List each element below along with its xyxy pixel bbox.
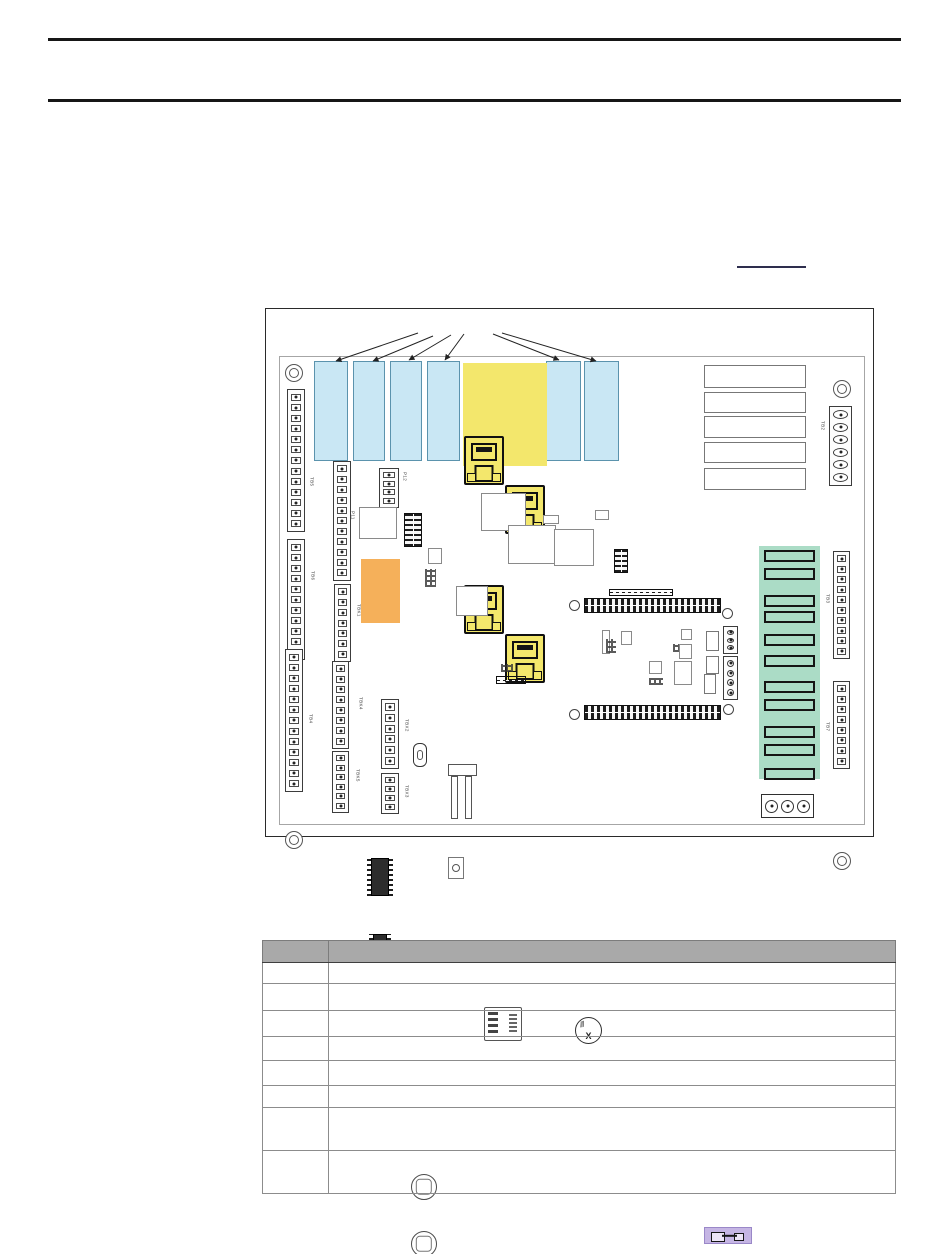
highlight-fuse-purple (704, 1227, 752, 1244)
mounting-hole (285, 364, 303, 382)
table-cell (263, 1011, 329, 1037)
terminal-pin (291, 565, 301, 572)
terminal-pin (291, 575, 301, 582)
terminal-pin (291, 499, 301, 506)
label-tb5: TB5 (309, 477, 314, 486)
relay-bar-10 (764, 744, 815, 756)
white-box-5 (704, 468, 806, 490)
table-cell (329, 1108, 896, 1151)
terminal-strip-tb5 (287, 389, 305, 532)
relay-bar-4 (764, 611, 815, 623)
table-cell (263, 963, 329, 984)
terminal-pin (833, 448, 848, 457)
terminal-pin (727, 679, 734, 686)
table-row (263, 1086, 896, 1108)
terminal-pin (337, 465, 347, 472)
table-header-row (263, 941, 896, 963)
rj45-detail (467, 622, 476, 631)
relay-small-1 (706, 631, 719, 651)
terminal-pin (289, 728, 299, 735)
standoff-hole (569, 600, 580, 611)
terminal-pin (385, 714, 395, 722)
ic-large-4 (456, 586, 488, 616)
terminal-pin (291, 468, 301, 475)
terminal-pin (336, 774, 345, 780)
terminal-pin (289, 654, 299, 661)
terminal-pin (385, 786, 395, 792)
relay-bar-5 (764, 634, 815, 646)
terminal-pin (338, 599, 347, 606)
ic-sq-1 (621, 631, 632, 645)
terminal-pin (385, 777, 395, 783)
terminal-pin (837, 727, 846, 734)
label-tbk4: TBK4 (358, 697, 363, 710)
relay-bar-11 (764, 768, 815, 780)
terminal-pin (837, 706, 846, 713)
pin-header-row (496, 676, 526, 684)
terminal-pin (336, 755, 345, 761)
terminal-pin (385, 703, 395, 711)
terminal-pin (289, 675, 299, 682)
table-cell (263, 1151, 329, 1194)
table-header-cell (263, 941, 329, 963)
terminal-strip-tbk1 (334, 584, 351, 662)
ic-sq-2 (681, 629, 692, 640)
board-parts-layer: TB2TB3TB7TB5TB6TB4TBK1TBK4TBK5TBX2TBX3P1… (266, 309, 873, 836)
terminal-pin (336, 665, 345, 672)
dip-switch-16 (367, 858, 393, 896)
standoff-hole (722, 608, 733, 619)
highlight-slot-blue-2 (353, 361, 385, 461)
terminal-strip-tbk5 (332, 751, 349, 813)
rj45-detail (512, 641, 538, 659)
regulator-leg (465, 776, 472, 819)
terminal-pin (727, 660, 734, 667)
jumper-3 (606, 639, 616, 653)
terminal-strip-inner (333, 461, 351, 581)
terminal-block-tb7 (833, 681, 850, 769)
pin-header-dual-top (584, 598, 721, 613)
terminal-pin (837, 627, 846, 634)
terminal-strip-tbk4 (332, 661, 349, 749)
rj45-detail (467, 473, 476, 482)
legend-table (262, 940, 896, 1194)
terminal-pin (291, 457, 301, 464)
relay-bar-6 (764, 655, 815, 667)
buzzer (448, 857, 464, 879)
label-tb3: TB3 (825, 594, 830, 603)
relay-bar-7 (764, 681, 815, 693)
label-tb2: TB2 (820, 421, 825, 430)
ic-small-2 (595, 510, 609, 520)
table-cell (263, 1086, 329, 1108)
terminal-pin (385, 757, 395, 765)
pin-header-single (609, 589, 673, 596)
hyperlink-underline[interactable] (737, 266, 806, 268)
table-row (263, 984, 896, 1011)
terminal-pin (338, 620, 347, 627)
relay-bar-2 (764, 568, 815, 580)
white-box-4 (704, 442, 806, 463)
highlight-slot-blue-1 (314, 361, 348, 461)
terminal-pin (336, 784, 345, 790)
table-cell (263, 1108, 329, 1151)
standoff-hole (569, 709, 580, 720)
terminal-pin (837, 685, 846, 692)
terminal-pin (291, 638, 301, 645)
terminal-pin (289, 770, 299, 777)
connector-p12 (379, 468, 399, 508)
terminal-pin (291, 510, 301, 517)
terminal-pin (337, 476, 347, 483)
highlight-slot-blue-3 (390, 361, 422, 461)
terminal-pin (336, 717, 345, 724)
terminal-pin (837, 617, 846, 624)
table-row (263, 1061, 896, 1086)
terminal-pin (385, 735, 395, 743)
terminal-pin (338, 651, 347, 658)
terminal-pin (837, 576, 846, 583)
terminal-pin (336, 676, 345, 683)
relay-small-2 (706, 656, 719, 674)
ic-large-2 (508, 525, 556, 564)
terminal-pin (338, 630, 347, 637)
table-row (263, 1108, 896, 1151)
table-cell (329, 1037, 896, 1061)
mounting-hole (833, 380, 851, 398)
ic-small-1 (543, 515, 559, 524)
jumper-2 (649, 678, 663, 685)
terminal-pin (336, 738, 345, 745)
label-tb4: TB4 (308, 714, 313, 723)
terminal-pin (289, 780, 299, 787)
terminal-strip-tb4 (285, 649, 303, 792)
rj45-detail (475, 614, 494, 631)
terminal-pin (837, 737, 846, 744)
white-box-1 (704, 365, 806, 388)
terminal-pin (291, 544, 301, 551)
power-screw (781, 800, 794, 813)
table-cell (329, 1086, 896, 1108)
terminal-pin (727, 689, 734, 696)
pin-header-dual-bottom (584, 705, 721, 720)
standoff-hole (723, 704, 734, 715)
table-row (263, 963, 896, 984)
power-terminal-block (761, 794, 814, 818)
fuse-symbol (722, 1234, 737, 1236)
terminal-pin (833, 435, 848, 444)
rj45-jack-1 (464, 436, 504, 485)
board-figure: TB2TB3TB7TB5TB6TB4TBK1TBK4TBK5TBX2TBX3P1… (265, 308, 874, 837)
terminal-pin (385, 804, 395, 810)
terminal-pin (336, 696, 345, 703)
terminal-pin (291, 520, 301, 527)
terminal-pin (337, 559, 347, 566)
terminal-pin (383, 489, 395, 495)
highlight-slot-blue-5 (546, 361, 581, 461)
label-p11: P11 (350, 511, 355, 520)
resistor-network (425, 569, 436, 587)
terminal-pin (289, 685, 299, 692)
terminal-pin (837, 637, 846, 644)
terminal-pin (337, 517, 347, 524)
terminal-pin (291, 586, 301, 593)
terminal-pin (291, 425, 301, 432)
relay-bar-8 (764, 699, 815, 711)
label-tbk1: TBK1 (356, 604, 361, 617)
header-rule-bottom (48, 99, 901, 102)
relay-small-3 (704, 674, 716, 694)
terminal-pin (291, 554, 301, 561)
terminal-pin (383, 472, 395, 478)
terminal-pin (837, 747, 846, 754)
terminal-pin (833, 423, 848, 432)
table-header-cell (329, 941, 896, 963)
terminal-pin (385, 795, 395, 801)
terminal-pin (833, 473, 848, 482)
terminal-pin (289, 759, 299, 766)
vertical-connector (404, 513, 422, 547)
terminal-pin (291, 404, 301, 411)
terminal-strip-tb6 (287, 539, 305, 660)
terminal-pin (291, 415, 301, 422)
table-cell (329, 1061, 896, 1086)
terminal-pin (289, 664, 299, 671)
ic-p11 (359, 507, 397, 539)
table-cell (263, 1061, 329, 1086)
terminal-pin (837, 607, 846, 614)
table-cell (329, 1151, 896, 1194)
terminal-pin (336, 765, 345, 771)
terminal-pin (289, 706, 299, 713)
relay-bar-3 (764, 595, 815, 607)
terminal-pin (336, 686, 345, 693)
terminal-pin (289, 696, 299, 703)
terminal-pin (336, 793, 345, 799)
terminal-pin (291, 628, 301, 635)
terminal-block-tb3 (833, 551, 850, 659)
terminal-pin (727, 670, 734, 677)
jumper-block (501, 664, 513, 672)
terminal-pin (289, 749, 299, 756)
terminal-pin (291, 436, 301, 443)
mounting-hole (833, 852, 851, 870)
terminal-pin (727, 645, 734, 650)
terminal-pin (833, 460, 848, 469)
terminal-pin (291, 596, 301, 603)
label-tbx3: TBX3 (404, 785, 409, 798)
ic-rect (674, 661, 692, 685)
power-screw (765, 800, 778, 813)
ic-large-3 (554, 529, 594, 566)
terminal-block-tb2 (829, 406, 852, 486)
terminal-pin (837, 586, 846, 593)
rj45-detail (492, 622, 501, 631)
connector-4pin-b (723, 656, 738, 700)
label-tb6: TB6 (310, 571, 315, 580)
table-cell (329, 963, 896, 984)
terminal-pin (385, 725, 395, 733)
label-tbx2: TBX2 (404, 719, 409, 732)
terminal-pin (385, 746, 395, 754)
terminal-pin (338, 609, 347, 616)
terminal-pin (837, 716, 846, 723)
mounting-hole (285, 831, 303, 849)
soic-8b (679, 644, 692, 659)
white-box-2 (704, 392, 806, 413)
table-row (263, 1037, 896, 1061)
relay-bar-1 (764, 550, 815, 562)
terminal-pin (727, 638, 734, 643)
terminal-pin (336, 727, 345, 734)
connector-4pin-a (723, 626, 738, 654)
terminal-pin (727, 630, 734, 635)
terminal-pin (337, 528, 347, 535)
terminal-pin (291, 394, 301, 401)
terminal-pin (289, 717, 299, 724)
soic-8 (428, 548, 442, 564)
table-row (263, 1011, 896, 1037)
terminal-pin (291, 446, 301, 453)
highlight-slot-blue-6 (584, 361, 619, 461)
terminal-pin (337, 497, 347, 504)
terminal-pin (837, 555, 846, 562)
micro-usb-port (413, 743, 427, 767)
terminal-pin (837, 596, 846, 603)
power-screw (797, 800, 810, 813)
terminal-pin (291, 478, 301, 485)
terminal-pin (337, 486, 347, 493)
table-cell (263, 984, 329, 1011)
table-cell (329, 984, 896, 1011)
terminal-pin (337, 507, 347, 514)
rj45-detail (492, 473, 501, 482)
terminal-pin (289, 738, 299, 745)
terminal-pin (291, 617, 301, 624)
terminal-pin (837, 648, 846, 655)
rj45-detail (471, 443, 497, 461)
terminal-pin (336, 707, 345, 714)
capacitor-2 (411, 1231, 437, 1254)
terminal-pin (337, 569, 347, 576)
header-rule-top (48, 38, 901, 41)
terminal-pin (337, 538, 347, 545)
terminal-strip-tbx3 (381, 773, 399, 814)
regulator-leg (451, 776, 458, 819)
terminal-pin (338, 588, 347, 595)
table-cell (329, 1011, 896, 1037)
label-tbk5: TBK5 (355, 769, 360, 782)
label-tb7: TB7 (825, 722, 830, 731)
table-cell (263, 1037, 329, 1061)
terminal-pin (291, 607, 301, 614)
terminal-pin (383, 498, 395, 504)
label-p12: P12 (402, 472, 407, 481)
terminal-pin (337, 549, 347, 556)
highlight-slot-blue-4 (427, 361, 460, 461)
white-box-3 (704, 416, 806, 438)
terminal-pin (338, 640, 347, 647)
rj45-detail (475, 465, 494, 482)
terminal-pin (837, 758, 846, 765)
relay-bar-9 (764, 726, 815, 738)
terminal-pin (291, 489, 301, 496)
table-row (263, 1151, 896, 1194)
highlight-dip-orange (361, 559, 400, 623)
regulator-head (448, 764, 477, 776)
terminal-pin (336, 803, 345, 809)
rj45-detail (533, 671, 542, 680)
terminal-pin (837, 566, 846, 573)
terminal-pin (837, 696, 846, 703)
ic-sq-3 (649, 661, 662, 674)
terminal-strip-tbx2 (381, 699, 399, 769)
terminal-pin (383, 481, 395, 487)
terminal-pin (833, 410, 848, 419)
pin-header-vertical (614, 549, 628, 573)
manual-page: TB2TB3TB7TB5TB6TB4TBK1TBK4TBK5TBX2TBX3P1… (0, 0, 950, 1254)
